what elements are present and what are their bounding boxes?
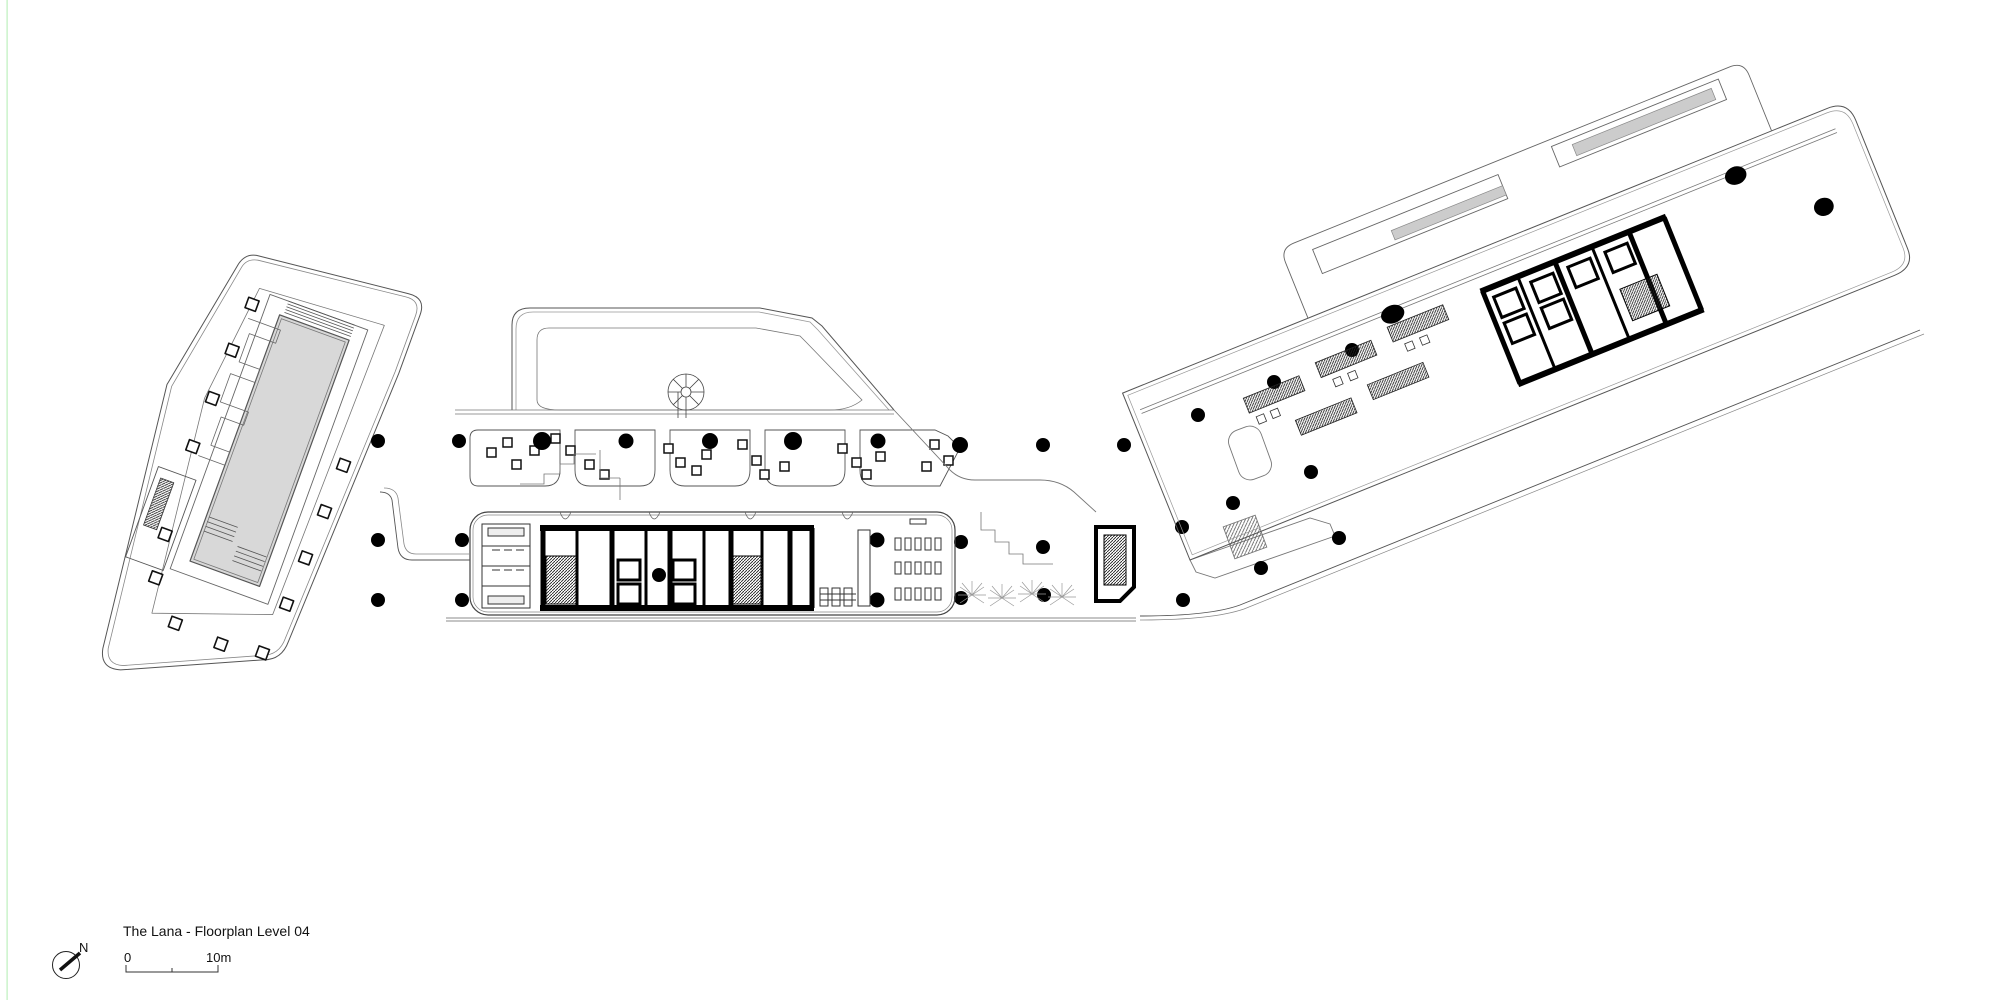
svg-text:10m: 10m [206,950,231,965]
svg-text:N: N [79,940,88,955]
svg-text:The Lana - Floorplan Level 04: The Lana - Floorplan Level 04 [123,923,310,939]
svg-text:0: 0 [124,950,131,965]
